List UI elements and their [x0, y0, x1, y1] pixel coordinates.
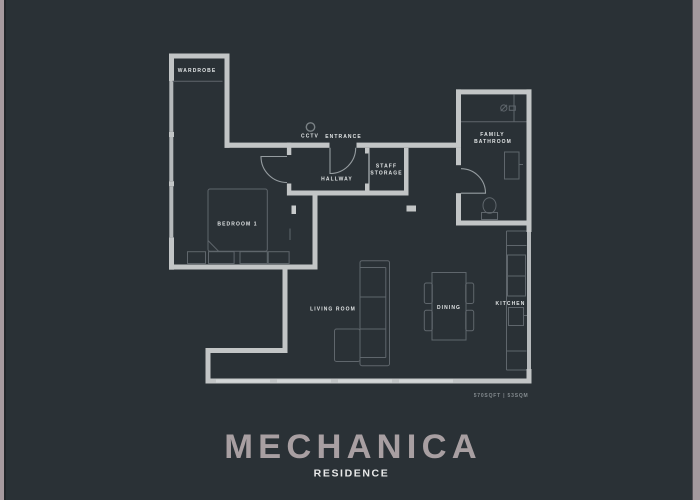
svg-text:BATHROOM: BATHROOM	[474, 139, 512, 145]
svg-text:STAFF: STAFF	[376, 163, 397, 169]
svg-text:BEDROOM 1: BEDROOM 1	[217, 222, 257, 228]
svg-text:LIVING ROOM: LIVING ROOM	[310, 307, 356, 313]
svg-text:KITCHEN: KITCHEN	[496, 301, 526, 307]
svg-text:ENTRANCE: ENTRANCE	[325, 134, 362, 140]
svg-text:FAMILY: FAMILY	[480, 132, 504, 138]
svg-text:HALLWAY: HALLWAY	[321, 176, 353, 182]
svg-text:570SQFT | 53SQM: 570SQFT | 53SQM	[474, 393, 529, 399]
svg-text:DINING: DINING	[437, 305, 461, 311]
svg-text:MECHANICA: MECHANICA	[224, 428, 482, 466]
svg-text:CCTV: CCTV	[301, 133, 319, 139]
svg-text:RESIDENCE: RESIDENCE	[314, 468, 390, 480]
svg-text:WARDROBE: WARDROBE	[178, 68, 217, 74]
svg-text:STORAGE: STORAGE	[370, 170, 402, 176]
